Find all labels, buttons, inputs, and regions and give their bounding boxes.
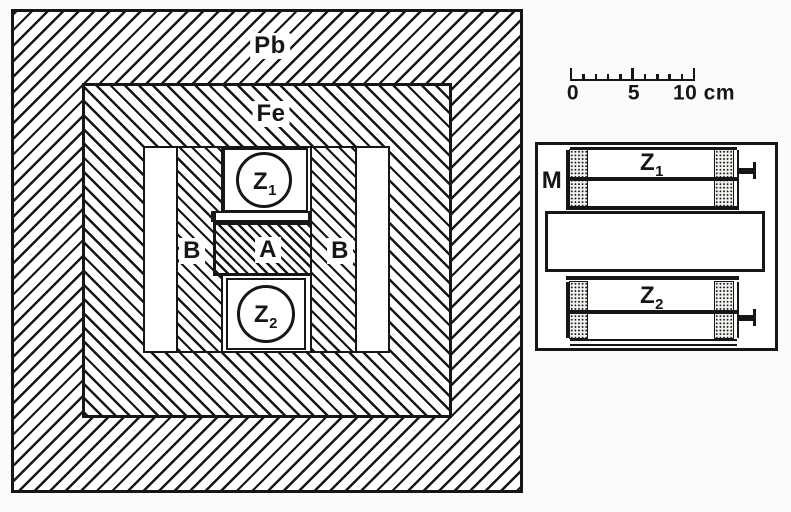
left-air-slot <box>145 148 176 351</box>
z2-label: Z2 <box>254 303 278 327</box>
z2-bottom-plate-line2 <box>570 344 737 347</box>
right-air-slot <box>357 148 388 351</box>
scale-tick-minor <box>681 74 684 82</box>
scale-label-5: 5 <box>628 83 640 104</box>
scale-tick-minor <box>582 74 585 82</box>
z1-bottom-wall <box>566 206 739 210</box>
scale-tick-major <box>631 68 634 81</box>
side-view-box: Z1 Z2 M <box>535 142 778 351</box>
z2-bottom-plate-line1 <box>570 339 737 342</box>
scale-tick-minor <box>644 74 647 82</box>
scale-tick-minor <box>607 74 610 82</box>
scale-tick-major <box>570 68 573 81</box>
z2-hv-connector <box>739 315 753 321</box>
z1-hv-connector <box>739 168 753 174</box>
z2-axis-line <box>566 310 739 314</box>
b-right-label: B <box>327 238 353 264</box>
figure-shielded-counter-diagram: Pb Fe B A B Z1 Z2 0 5 10 cm <box>0 0 791 512</box>
scale-label-0: 0 <box>567 83 579 104</box>
scale-tick-minor <box>595 74 598 82</box>
z2-top-wall <box>566 276 739 280</box>
scale-tick-minor <box>668 74 671 82</box>
z1-label: Z1 <box>253 170 277 194</box>
scale-tick-minor <box>656 74 659 82</box>
side-z2-label: Z2 <box>640 284 664 308</box>
a-label: A <box>255 237 281 263</box>
sample-tray-strip <box>211 211 313 222</box>
side-z1-label: Z1 <box>640 151 664 175</box>
scale-tick-major <box>693 68 696 81</box>
z1-hv-connector-pin <box>753 162 756 179</box>
z2-hv-connector-pin <box>753 309 756 326</box>
sample-tray-side <box>545 211 765 272</box>
scale-tick-minor <box>619 74 622 82</box>
z1-axis-line <box>566 177 739 181</box>
m-label: M <box>542 169 563 193</box>
fe-label: Fe <box>252 101 289 127</box>
scale-label-10cm: 10 cm <box>673 83 735 104</box>
pb-label: Pb <box>250 33 290 59</box>
b-left-label: B <box>179 238 205 264</box>
